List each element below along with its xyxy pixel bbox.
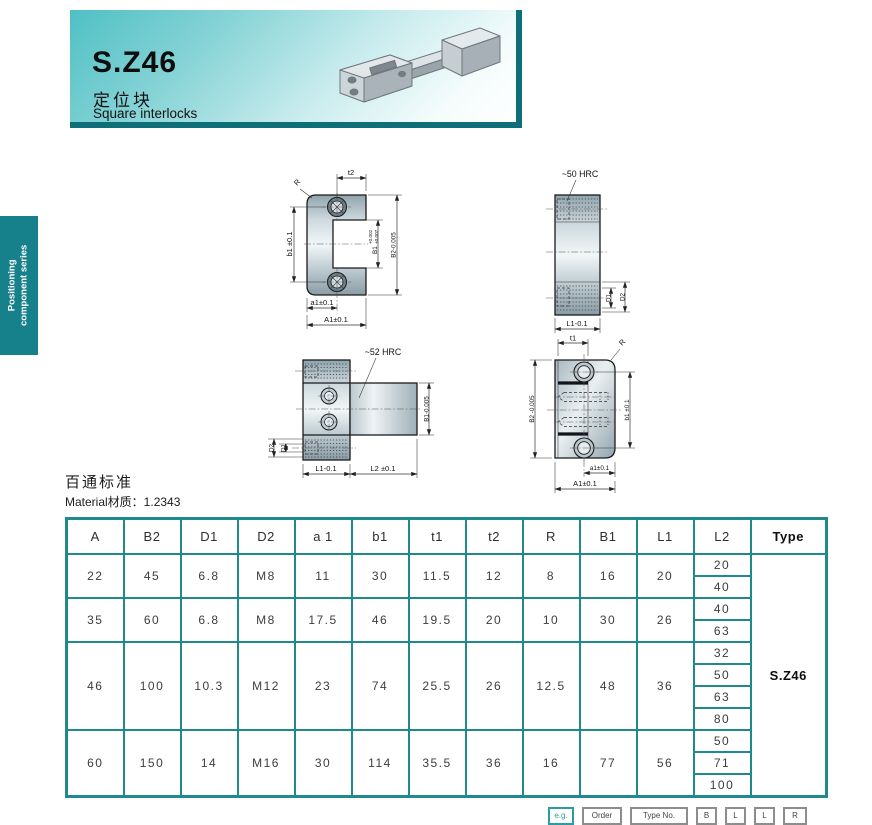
table-cell: 35.5 xyxy=(409,730,466,797)
svg-text:b1 ±0.1: b1 ±0.1 xyxy=(624,399,631,420)
page-title: S.Z46 xyxy=(92,46,177,80)
svg-text:a1±0.1: a1±0.1 xyxy=(311,298,334,307)
dim-L1: L1-0.1 xyxy=(555,318,600,333)
table-cell-L2: 63 xyxy=(694,620,751,642)
order-field-box: R xyxy=(783,807,807,825)
table-cell-L2: 100 xyxy=(694,774,751,797)
table-cell: 10 xyxy=(523,598,580,642)
svg-text:L1-0.1: L1-0.1 xyxy=(566,319,587,328)
dim-D1: D1 xyxy=(279,443,303,452)
title-english: Square interlocks xyxy=(93,106,197,121)
table-cell-L2: 40 xyxy=(694,598,751,620)
col-header: B1 xyxy=(580,519,637,555)
table-row: 35 60 6.8 M8 17.5 46 19.5 20 10 30 26 40 xyxy=(67,598,827,620)
table-cell: 10.3 xyxy=(181,642,238,730)
dim-B1: B1-0.005 xyxy=(419,383,434,435)
table-cell: 46 xyxy=(352,598,409,642)
table-cell: 36 xyxy=(637,642,694,730)
table-cell: 12.5 xyxy=(523,642,580,730)
svg-text:A1±0.1: A1±0.1 xyxy=(573,479,597,488)
dim-t1: t1 xyxy=(558,334,588,357)
svg-text:~52 HRC: ~52 HRC xyxy=(365,347,402,357)
col-header: A xyxy=(67,519,124,555)
catalog-page: S.Z46 定位块 Square interlocks xyxy=(0,0,872,818)
table-cell-L2: 32 xyxy=(694,642,751,664)
drawing-front-view-male: t1 R B2 -0.005 b1 ±0.1 a1±0.1 A1 xyxy=(518,333,683,505)
svg-text:B2 -0.005: B2 -0.005 xyxy=(529,395,536,423)
svg-text:D1: D1 xyxy=(606,293,613,302)
svg-text:L2 ±0.1: L2 ±0.1 xyxy=(371,464,396,473)
table-cell: 46 xyxy=(67,642,124,730)
drawing-side-view-female: ~50 HRC D1 D2 L1-0.1 xyxy=(530,160,680,342)
col-header: D1 xyxy=(181,519,238,555)
dim-B2: B2 -0.005 xyxy=(529,360,552,458)
sidebar-series-label: Positioning component series xyxy=(7,245,32,326)
table-cell: 26 xyxy=(637,598,694,642)
table-cell: 77 xyxy=(580,730,637,797)
order-field-box: L xyxy=(754,807,775,825)
table-cell: 74 xyxy=(352,642,409,730)
svg-text:b1 ±0.1: b1 ±0.1 xyxy=(285,232,294,257)
table-row: 22 45 6.8 M8 11 30 11.5 12 8 16 20 20 S.… xyxy=(67,554,827,576)
dim-L2: L2 ±0.1 xyxy=(350,439,417,478)
table-cell: 60 xyxy=(124,598,181,642)
col-header: B2 xyxy=(124,519,181,555)
type-no-box: Type No. xyxy=(630,807,688,825)
table-cell: 6.8 xyxy=(181,554,238,598)
material-note: Material材质：1.2343 xyxy=(65,493,180,510)
col-header: t1 xyxy=(409,519,466,555)
table-cell: 30 xyxy=(295,730,352,797)
table-cell-L2: 50 xyxy=(694,730,751,752)
table-cell: 14 xyxy=(181,730,238,797)
svg-text:+0.002: +0.002 xyxy=(368,229,373,244)
table-cell: 56 xyxy=(637,730,694,797)
table-cell: M16 xyxy=(238,730,295,797)
table-cell: 23 xyxy=(295,642,352,730)
svg-text:B1-0.005: B1-0.005 xyxy=(424,396,431,422)
dim-D1: D1 xyxy=(602,288,616,308)
table-cell-L2: 50 xyxy=(694,664,751,686)
svg-text:B2-0.005: B2-0.005 xyxy=(391,232,398,258)
svg-text:t1: t1 xyxy=(570,334,576,343)
table-header-row: A B2 D1 D2 a 1 b1 t1 t2 R B1 L1 L2 Type xyxy=(67,519,827,555)
table-cell: 60 xyxy=(67,730,124,797)
order-example-box: e.g. xyxy=(548,807,574,825)
order-box: Order xyxy=(582,807,622,825)
table-cell: 16 xyxy=(523,730,580,797)
table-cell: 30 xyxy=(352,554,409,598)
svg-text:R: R xyxy=(292,177,303,188)
table-cell: 26 xyxy=(466,642,523,730)
dim-B1-inner: B1 +0.002 +0.007 xyxy=(366,220,383,268)
col-header: a 1 xyxy=(295,519,352,555)
drawing-side-view-male: ~52 HRC B1-0.005 D1 D2 L1-0.1 xyxy=(262,340,462,485)
table-cell: 35 xyxy=(67,598,124,642)
dim-a1: a1±0.1 xyxy=(584,460,615,477)
table-cell: 6.8 xyxy=(181,598,238,642)
dim-R: R xyxy=(611,337,628,360)
table-cell-L2: 63 xyxy=(694,686,751,708)
order-field-box: L xyxy=(725,807,746,825)
table-cell: 150 xyxy=(124,730,181,797)
table-cell: 12 xyxy=(466,554,523,598)
dim-R: R xyxy=(292,177,312,198)
dimension-table: A B2 D1 D2 a 1 b1 t1 t2 R B1 L1 L2 Type … xyxy=(65,517,828,798)
table-cell: 36 xyxy=(466,730,523,797)
dim-B2: B2-0.005 xyxy=(368,195,402,295)
table-cell: 19.5 xyxy=(409,598,466,642)
table-cell: 16 xyxy=(580,554,637,598)
svg-text:t2: t2 xyxy=(348,168,354,177)
svg-text:A1±0.1: A1±0.1 xyxy=(324,315,348,324)
svg-text:L1-0.1: L1-0.1 xyxy=(315,464,336,473)
col-header-type: Type xyxy=(751,519,827,555)
table-cell: M8 xyxy=(238,554,295,598)
part-photo xyxy=(310,14,520,118)
table-cell: 100 xyxy=(124,642,181,730)
table-cell: 48 xyxy=(580,642,637,730)
table-cell: 17.5 xyxy=(295,598,352,642)
svg-text:B1: B1 xyxy=(372,246,379,254)
sidebar-series-tab: Positioning component series xyxy=(0,216,38,355)
table-cell-L2: 71 xyxy=(694,752,751,774)
drawing-front-view-female: t2 b1 ±0.1 B1 +0.002 +0.007 B2-0.005 xyxy=(270,165,450,340)
table-row: 60 150 14 M16 30 114 35.5 36 16 77 56 50 xyxy=(67,730,827,752)
col-header: t2 xyxy=(466,519,523,555)
table-cell: 20 xyxy=(637,554,694,598)
table-cell-L2: 20 xyxy=(694,554,751,576)
col-header: R xyxy=(523,519,580,555)
svg-text:D2: D2 xyxy=(620,292,627,301)
table-cell: 8 xyxy=(523,554,580,598)
standard-heading: 百通标准 xyxy=(65,471,133,492)
table-cell: 11.5 xyxy=(409,554,466,598)
col-header: b1 xyxy=(352,519,409,555)
col-header: L2 xyxy=(694,519,751,555)
svg-text:+0.007: +0.007 xyxy=(374,229,379,244)
table-cell: 22 xyxy=(67,554,124,598)
table-cell: 45 xyxy=(124,554,181,598)
table-cell: 30 xyxy=(580,598,637,642)
svg-text:R: R xyxy=(617,337,628,348)
table-row: 46 100 10.3 M12 23 74 25.5 26 12.5 48 36… xyxy=(67,642,827,664)
table-cell-L2: 80 xyxy=(694,708,751,730)
col-header: D2 xyxy=(238,519,295,555)
table-cell-L2: 40 xyxy=(694,576,751,598)
order-field-box: B xyxy=(696,807,717,825)
table-cell: 114 xyxy=(352,730,409,797)
order-example-strip: e.g. Order Type No. B L L R xyxy=(548,807,807,825)
table-cell: 20 xyxy=(466,598,523,642)
svg-text:a1±0.1: a1±0.1 xyxy=(590,465,610,472)
dim-L1: L1-0.1 xyxy=(303,464,350,478)
table-cell: 25.5 xyxy=(409,642,466,730)
header-banner: S.Z46 定位块 Square interlocks xyxy=(70,10,522,128)
table-cell: 11 xyxy=(295,554,352,598)
svg-text:D2: D2 xyxy=(269,443,276,452)
svg-text:~50 HRC: ~50 HRC xyxy=(562,169,599,179)
type-cell: S.Z46 xyxy=(751,554,827,797)
svg-text:D1: D1 xyxy=(281,443,288,452)
col-header: L1 xyxy=(637,519,694,555)
table-cell: M8 xyxy=(238,598,295,642)
table-cell: M12 xyxy=(238,642,295,730)
